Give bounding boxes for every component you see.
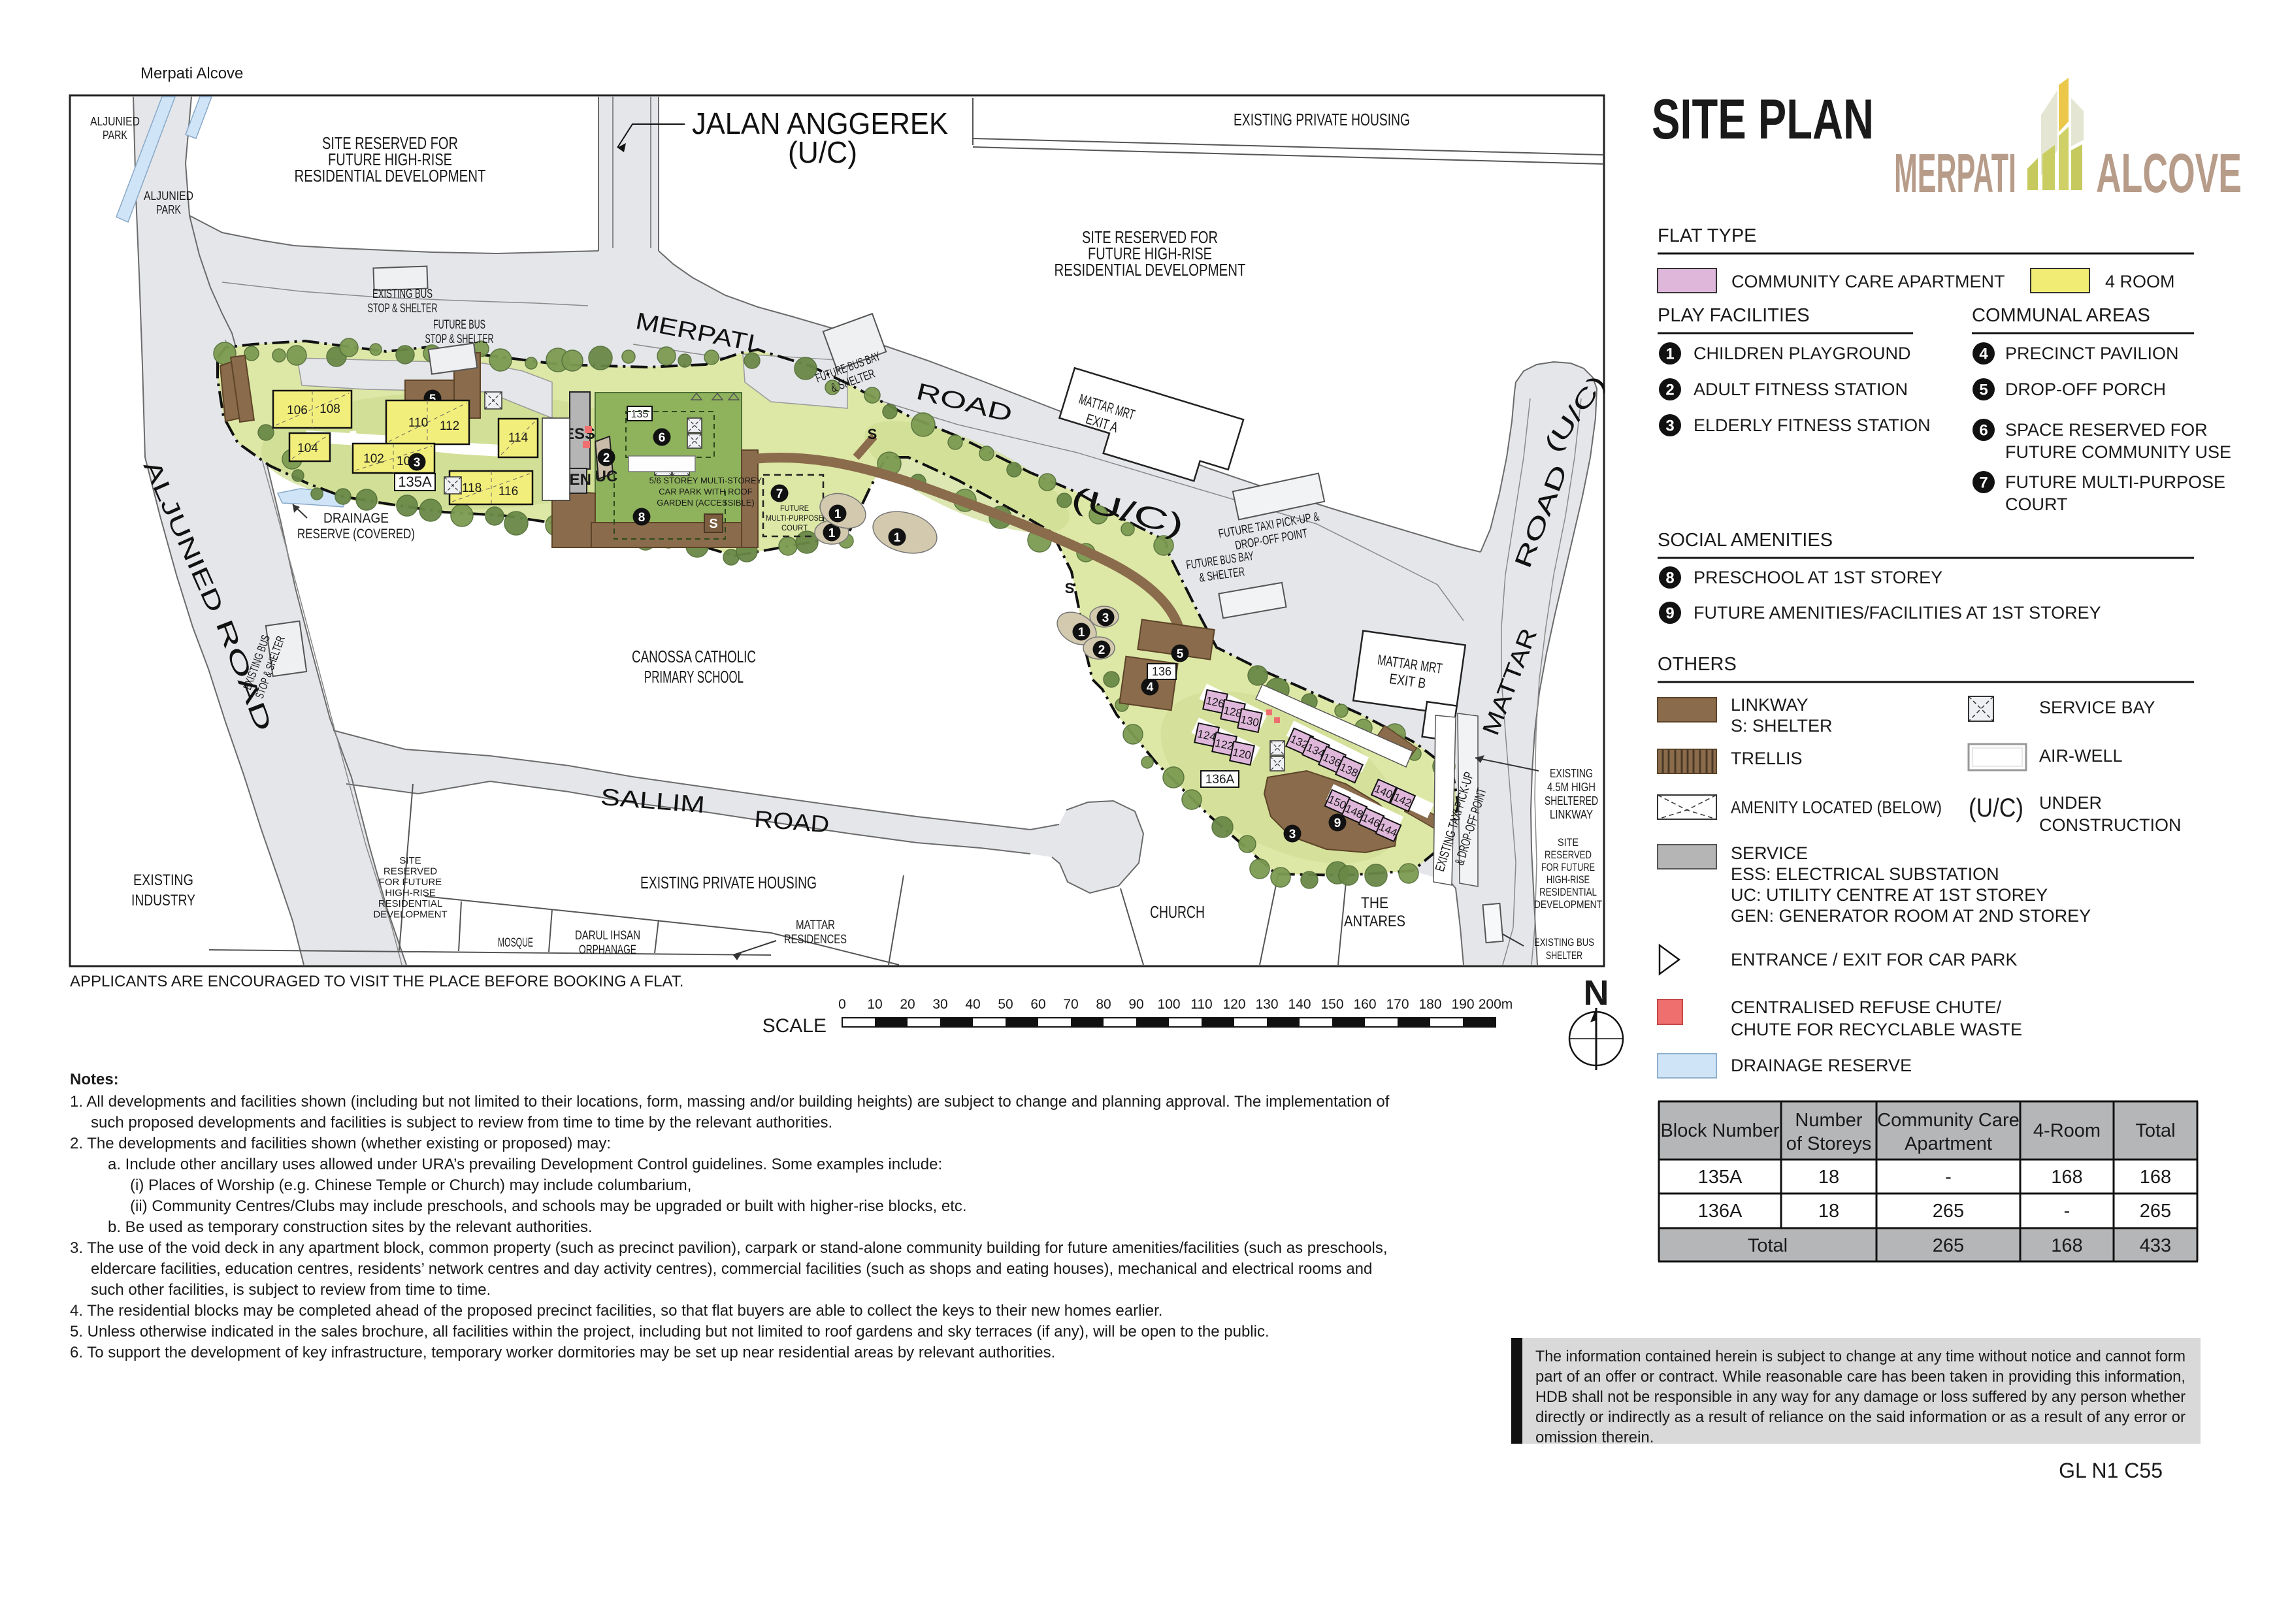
svg-text:Total: Total (1748, 1235, 1788, 1256)
svg-text:1: 1 (894, 531, 901, 545)
svg-text:1. All developments and facil: 1. All developments and facilities shown… (70, 1093, 1390, 1111)
svg-text:such other facilities, is subj: such other facilities, is subject to rev… (91, 1281, 491, 1299)
svg-text:6: 6 (1979, 422, 1988, 440)
svg-text:ENTRANCE / EXIT FOR CAR PARK: ENTRANCE / EXIT FOR CAR PARK (1731, 950, 2018, 969)
svg-text:265: 265 (1933, 1201, 1964, 1222)
svg-text:EXISTING: EXISTING (1550, 767, 1593, 780)
svg-text:EXISTING BUS: EXISTING BUS (1534, 936, 1594, 949)
svg-text:COURT: COURT (2005, 495, 2068, 514)
svg-text:MATTAR: MATTAR (796, 918, 835, 932)
svg-text:PLAY FACILITIES: PLAY FACILITIES (1658, 305, 1810, 326)
svg-text:8: 8 (1665, 570, 1674, 587)
svg-text:MOSQUE: MOSQUE (498, 936, 533, 950)
svg-text:eldercare facilities, educatio: eldercare facilities, education centres,… (91, 1260, 1372, 1278)
svg-text:APPLICANTS ARE ENCOURAGED TO V: APPLICANTS ARE ENCOURAGED TO VISIT THE P… (70, 973, 683, 990)
svg-text:PRESCHOOL AT 1ST STOREY: PRESCHOOL AT 1ST STOREY (1694, 568, 1942, 587)
svg-text:CHURCH: CHURCH (1150, 902, 1205, 922)
svg-text:4 ROOM: 4 ROOM (2105, 272, 2175, 291)
svg-text:SHELTER: SHELTER (1546, 949, 1582, 962)
svg-text:110: 110 (1190, 997, 1212, 1012)
svg-text:2: 2 (1665, 382, 1674, 399)
svg-text:STOP & SHELTER: STOP & SHELTER (425, 333, 494, 346)
svg-text:LINKWAY: LINKWAY (1731, 695, 1809, 715)
svg-text:HIGH-RISE: HIGH-RISE (385, 888, 436, 899)
svg-text:8: 8 (638, 511, 646, 525)
svg-text:COMMUNAL AREAS: COMMUNAL AREAS (1972, 305, 2150, 326)
svg-text:HDB shall not be responsible i: HDB shall not be responsible in any way … (1535, 1388, 2186, 1406)
svg-text:FUTURE BUS: FUTURE BUS (433, 318, 485, 332)
svg-text:114: 114 (508, 431, 529, 445)
svg-text:SHELTERED: SHELTERED (1545, 794, 1598, 807)
svg-text:Block Number: Block Number (1660, 1120, 1779, 1141)
svg-text:CHILDREN PLAYGROUND: CHILDREN PLAYGROUND (1694, 344, 1911, 363)
svg-text:Number: Number (1795, 1110, 1862, 1131)
svg-text:ELDERLY FITNESS STATION: ELDERLY FITNESS STATION (1694, 415, 1931, 435)
svg-text:b. Be used as temporary const: b. Be used as temporary construction sit… (108, 1218, 593, 1236)
svg-text:CANOSSA CATHOLIC: CANOSSA CATHOLIC (632, 647, 756, 666)
svg-text:DRAINAGE: DRAINAGE (323, 511, 389, 526)
svg-text:4: 4 (1979, 346, 1988, 363)
svg-text:-: - (1945, 1167, 1952, 1188)
svg-text:RESIDENTIAL DEVELOPMENT: RESIDENTIAL DEVELOPMENT (295, 166, 486, 186)
svg-text:FUTURE AMENITIES/FACILITIES AT: FUTURE AMENITIES/FACILITIES AT 1ST STORE… (1694, 603, 2101, 623)
svg-text:5/6 STOREY MULTi-STOREY: 5/6 STOREY MULTi-STOREY (649, 476, 762, 485)
svg-text:GL N1 C55: GL N1 C55 (2059, 1459, 2163, 1482)
svg-text:ORPHANAGE: ORPHANAGE (579, 943, 636, 957)
svg-text:RESERVED: RESERVED (1545, 849, 1592, 861)
svg-text:190: 190 (1451, 997, 1474, 1012)
svg-text:-: - (2064, 1201, 2071, 1222)
svg-text:UNDER: UNDER (2039, 793, 2102, 813)
svg-text:EXISTING BUS: EXISTING BUS (372, 287, 433, 301)
svg-text:3: 3 (414, 456, 421, 470)
svg-text:130: 130 (1255, 997, 1278, 1012)
svg-text:18: 18 (1818, 1201, 1839, 1222)
svg-text:9: 9 (1665, 605, 1674, 623)
svg-text:GARDEN (ACCESSIBLE): GARDEN (ACCESSIBLE) (657, 498, 755, 508)
svg-text:135A: 135A (1698, 1167, 1743, 1188)
svg-text:SPACE RESERVED FOR: SPACE RESERVED FOR (2005, 420, 2208, 440)
svg-text:3: 3 (1289, 828, 1296, 841)
svg-text:4-Room: 4-Room (2033, 1120, 2101, 1141)
svg-text:3. The use of the void deck i: 3. The use of the void deck in any apart… (70, 1239, 1388, 1257)
svg-text:CENTRALISED REFUSE CHUTE/: CENTRALISED REFUSE CHUTE/ (1731, 998, 2002, 1017)
svg-text:SITE PLAN: SITE PLAN (1652, 88, 1874, 151)
svg-text:(ii) Community Centres/Clubs m: (ii) Community Centres/Clubs may include… (130, 1197, 967, 1215)
svg-text:The information contained here: The information contained herein is subj… (1535, 1348, 2186, 1365)
svg-text:omission therein.: omission therein. (1535, 1429, 1654, 1446)
svg-text:(i) Places of Worship (e.g. C: (i) Places of Worship (e.g. Chinese Temp… (130, 1177, 691, 1194)
svg-text:50: 50 (998, 997, 1013, 1012)
svg-text:S: S (709, 517, 717, 531)
svg-text:PRIMARY SCHOOL: PRIMARY SCHOOL (644, 667, 744, 687)
svg-text:FUTURE MULTI-PURPOSE: FUTURE MULTI-PURPOSE (2005, 472, 2225, 492)
svg-text:Merpati Alcove: Merpati Alcove (140, 65, 243, 82)
svg-text:2. The developments and facil: 2. The developments and facilities shown… (70, 1135, 611, 1152)
svg-text:EXISTING PRIVATE HOUSING: EXISTING PRIVATE HOUSING (1234, 110, 1410, 129)
svg-text:102: 102 (363, 452, 384, 466)
svg-text:RESIDENCES: RESIDENCES (784, 933, 847, 947)
svg-text:3: 3 (1665, 417, 1674, 435)
svg-text:FUTURE COMMUNITY USE: FUTURE COMMUNITY USE (2005, 442, 2231, 462)
svg-text:106: 106 (287, 404, 308, 417)
svg-text:168: 168 (2051, 1235, 2082, 1256)
svg-text:1: 1 (1078, 626, 1085, 640)
svg-text:PARK: PARK (103, 129, 127, 142)
svg-text:ALJUNIED: ALJUNIED (144, 189, 193, 203)
svg-text:140: 140 (1288, 997, 1311, 1012)
svg-text:(U/C): (U/C) (1969, 794, 2023, 822)
svg-text:136A: 136A (1698, 1201, 1743, 1222)
svg-text:SERVICE: SERVICE (1731, 843, 1808, 863)
svg-text:S: S (1065, 580, 1075, 596)
svg-text:6: 6 (659, 431, 666, 445)
svg-text:CONSTRUCTION: CONSTRUCTION (2039, 815, 2182, 835)
svg-text:CHUTE FOR RECYCLABLE WASTE: CHUTE FOR RECYCLABLE WASTE (1731, 1020, 2022, 1039)
svg-text:265: 265 (1933, 1235, 1964, 1256)
svg-text:6. To support the development: 6. To support the development of key inf… (70, 1344, 1055, 1361)
svg-text:135: 135 (631, 409, 649, 420)
svg-text:S: S (868, 426, 877, 442)
svg-text:RESIDENTIAL DEVELOPMENT: RESIDENTIAL DEVELOPMENT (1055, 260, 1246, 280)
svg-text:433: 433 (2140, 1235, 2171, 1256)
svg-text:Notes:: Notes: (70, 1071, 119, 1088)
svg-text:RESIDENTIAL: RESIDENTIAL (1539, 886, 1597, 898)
svg-text:2: 2 (603, 451, 610, 465)
svg-text:80: 80 (1096, 997, 1111, 1012)
svg-text:GEN: GENERATOR ROOM AT 2ND STO: GEN: GENERATOR ROOM AT 2ND STOREY (1731, 906, 2091, 926)
svg-text:AMENITY LOCATED (BELOW): AMENITY LOCATED (BELOW) (1731, 798, 1942, 817)
svg-text:Total: Total (2135, 1120, 2175, 1141)
svg-text:18: 18 (1818, 1167, 1839, 1188)
svg-text:Apartment: Apartment (1905, 1133, 1992, 1154)
svg-text:ALCOVE: ALCOVE (2096, 142, 2242, 204)
svg-text:HIGH-RISE: HIGH-RISE (1547, 873, 1590, 886)
svg-text:TRELLIS: TRELLIS (1731, 749, 1803, 768)
svg-text:150: 150 (1320, 997, 1343, 1012)
svg-text:COURT: COURT (781, 523, 808, 532)
svg-text:MULTI-PURPOSE: MULTI-PURPOSE (766, 513, 823, 523)
svg-text:265: 265 (2140, 1201, 2171, 1222)
svg-text:60: 60 (1030, 997, 1045, 1012)
svg-text:RESIDENTIAL: RESIDENTIAL (378, 898, 442, 909)
svg-text:100: 100 (1157, 997, 1180, 1012)
svg-text:1: 1 (834, 508, 842, 521)
svg-text:4: 4 (1147, 681, 1154, 694)
svg-text:30: 30 (932, 997, 947, 1012)
svg-text:PARK: PARK (156, 203, 181, 216)
svg-text:136: 136 (1152, 665, 1171, 678)
svg-text:LINKWAY: LINKWAY (1550, 808, 1593, 821)
svg-text:INDUSTRY: INDUSTRY (131, 892, 195, 909)
svg-text:160: 160 (1353, 997, 1376, 1012)
svg-text:DEVELOPMENT: DEVELOPMENT (373, 909, 447, 920)
svg-text:168: 168 (2140, 1167, 2171, 1188)
svg-text:136A: 136A (1205, 773, 1235, 787)
svg-text:180: 180 (1418, 997, 1441, 1012)
svg-text:such proposed developments and: such proposed developments and facilitie… (91, 1114, 832, 1131)
svg-text:4.5M HIGH: 4.5M HIGH (1547, 781, 1596, 794)
svg-text:9: 9 (1334, 817, 1341, 830)
svg-text:5. Unless otherwise indicated: 5. Unless otherwise indicated in the sal… (70, 1323, 1269, 1340)
svg-text:OTHERS: OTHERS (1658, 654, 1737, 675)
svg-text:40: 40 (965, 997, 980, 1012)
svg-text:ALJUNIED: ALJUNIED (90, 115, 140, 128)
svg-text:70: 70 (1063, 997, 1078, 1012)
svg-text:DEVELOPMENT: DEVELOPMENT (1534, 898, 1602, 911)
svg-text:UC: UTILITY CENTRE AT 1ST STOR: UC: UTILITY CENTRE AT 1ST STOREY (1731, 885, 2048, 905)
svg-text:7: 7 (776, 487, 783, 501)
svg-text:of Storeys: of Storeys (1786, 1133, 1872, 1154)
svg-text:3: 3 (1102, 611, 1109, 625)
svg-text:ESS: ELECTRICAL SUBSTATION: ESS: ELECTRICAL SUBSTATION (1731, 864, 1999, 884)
svg-text:ADULT FITNESS STATION: ADULT FITNESS STATION (1694, 380, 1908, 399)
svg-text:SOCIAL AMENITIES: SOCIAL AMENITIES (1658, 530, 1833, 551)
svg-text:part of an offer or contract.: part of an offer or contract. While reas… (1535, 1368, 2186, 1386)
svg-text:RESERVE (COVERED): RESERVE (COVERED) (297, 527, 415, 542)
svg-text:7: 7 (1979, 474, 1988, 492)
svg-text:20: 20 (900, 997, 915, 1012)
svg-text:EXISTING PRIVATE HOUSING: EXISTING PRIVATE HOUSING (640, 873, 817, 892)
svg-text:2: 2 (1098, 643, 1105, 657)
svg-text:110: 110 (408, 416, 428, 430)
svg-text:STOP & SHELTER: STOP & SHELTER (368, 302, 438, 316)
svg-text:10: 10 (867, 997, 882, 1012)
svg-text:170: 170 (1386, 997, 1409, 1012)
svg-text:(U/C): (U/C) (788, 135, 857, 169)
svg-text:Community Care: Community Care (1877, 1110, 2020, 1131)
svg-text:112: 112 (440, 419, 459, 433)
svg-text:1: 1 (828, 527, 836, 540)
svg-text:200m: 200m (1479, 997, 1513, 1012)
svg-text:DRAINAGE RESERVE: DRAINAGE RESERVE (1731, 1056, 1912, 1075)
svg-text:5: 5 (1177, 647, 1184, 661)
svg-text:SERVICE BAY: SERVICE BAY (2039, 698, 2155, 717)
svg-text:THE: THE (1361, 894, 1388, 912)
svg-text:FOR FUTURE: FOR FUTURE (379, 877, 442, 888)
svg-text:PRECINCT PAVILION: PRECINCT PAVILION (2005, 344, 2179, 363)
svg-text:ANTARES: ANTARES (1344, 913, 1405, 930)
svg-text:S: SHELTER: S: SHELTER (1731, 716, 1833, 736)
svg-text:AIR-WELL: AIR-WELL (2039, 746, 2123, 766)
svg-text:RESERVED: RESERVED (384, 866, 437, 877)
svg-text:DROP-OFF PORCH: DROP-OFF PORCH (2005, 380, 2166, 399)
svg-text:CAR PARK WITH ROOF: CAR PARK WITH ROOF (659, 487, 753, 496)
svg-text:135A: 135A (398, 474, 432, 490)
svg-text:SITE: SITE (399, 855, 421, 866)
svg-text:MERPATI: MERPATI (1894, 142, 2016, 204)
svg-text:EXISTING: EXISTING (133, 871, 193, 889)
svg-text:168: 168 (2051, 1167, 2082, 1188)
svg-text:COMMUNITY CARE APARTMENT: COMMUNITY CARE APARTMENT (1731, 272, 2005, 291)
svg-text:116: 116 (499, 485, 518, 498)
svg-text:104: 104 (297, 442, 318, 455)
svg-text:DARUL IHSAN: DARUL IHSAN (575, 929, 640, 943)
svg-text:directly or indirectly as a re: directly or indirectly as a result of re… (1535, 1408, 2186, 1426)
svg-text:a. Include other ancillary us: a. Include other ancillary uses allowed … (108, 1156, 942, 1173)
svg-text:SITE: SITE (1558, 836, 1579, 849)
svg-text:118: 118 (462, 481, 482, 495)
svg-text:5: 5 (1979, 382, 1988, 399)
svg-text:FOR FUTURE: FOR FUTURE (1541, 861, 1595, 873)
svg-text:1: 1 (1665, 346, 1674, 363)
svg-text:FLAT TYPE: FLAT TYPE (1658, 225, 1757, 246)
svg-text:SCALE: SCALE (762, 1015, 827, 1037)
svg-text:90: 90 (1128, 997, 1143, 1012)
svg-text:0: 0 (838, 997, 846, 1012)
svg-text:FUTURE: FUTURE (780, 504, 809, 513)
svg-text:4. The residential blocks may: 4. The residential blocks may be complet… (70, 1302, 1162, 1320)
svg-text:120: 120 (1222, 997, 1245, 1012)
svg-text:N: N (1584, 973, 1609, 1013)
svg-text:108: 108 (319, 402, 340, 416)
